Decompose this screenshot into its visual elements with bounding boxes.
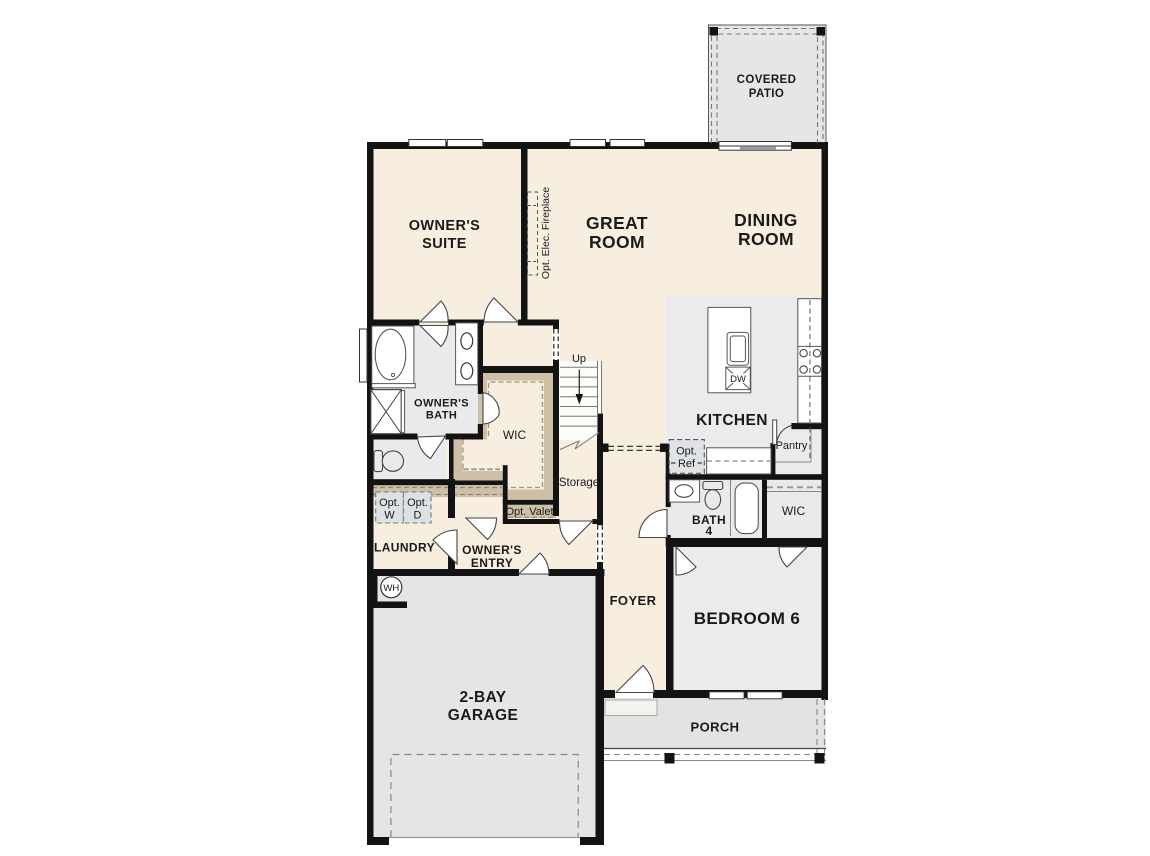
svg-text:OWNER'S: OWNER'S	[462, 543, 522, 557]
svg-text:COVERED: COVERED	[737, 74, 797, 86]
svg-text:DINING: DINING	[734, 210, 798, 230]
svg-text:WIC: WIC	[503, 428, 527, 442]
svg-text:ROOM: ROOM	[589, 232, 645, 252]
svg-text:OWNER'S: OWNER'S	[414, 398, 469, 410]
svg-text:W: W	[384, 510, 395, 522]
svg-text:BATH: BATH	[426, 410, 457, 422]
svg-text:4: 4	[705, 524, 712, 538]
svg-text:OWNER'S: OWNER'S	[409, 218, 481, 234]
svg-text:Ref: Ref	[678, 458, 696, 470]
svg-text:BEDROOM 6: BEDROOM 6	[694, 609, 801, 628]
svg-text:GREAT: GREAT	[586, 213, 648, 233]
svg-text:2-BAY: 2-BAY	[459, 689, 506, 706]
svg-text:WIC: WIC	[782, 504, 806, 518]
svg-text:Opt. Valet: Opt. Valet	[505, 506, 553, 518]
svg-text:WH: WH	[383, 583, 399, 594]
svg-text:Opt. Elec. Fireplace: Opt. Elec. Fireplace	[540, 187, 552, 279]
svg-text:FOYER: FOYER	[610, 593, 657, 608]
svg-text:LAUNDRY: LAUNDRY	[374, 541, 435, 555]
svg-text:Opt.: Opt.	[407, 497, 428, 509]
svg-text:SUITE: SUITE	[422, 236, 467, 252]
svg-text:DW: DW	[730, 374, 746, 385]
svg-text:ENTRY: ENTRY	[471, 556, 513, 570]
svg-text:Storage: Storage	[559, 477, 599, 489]
svg-text:PORCH: PORCH	[691, 720, 740, 735]
svg-text:GARAGE: GARAGE	[448, 707, 518, 724]
svg-text:Opt.: Opt.	[379, 497, 400, 509]
svg-text:Up: Up	[572, 353, 586, 365]
svg-text:D: D	[414, 510, 422, 522]
svg-text:ROOM: ROOM	[738, 229, 794, 249]
svg-text:Pantry: Pantry	[776, 440, 808, 452]
svg-text:KITCHEN: KITCHEN	[696, 412, 768, 429]
svg-text:Opt.: Opt.	[676, 446, 697, 458]
svg-text:PATIO: PATIO	[749, 88, 784, 100]
